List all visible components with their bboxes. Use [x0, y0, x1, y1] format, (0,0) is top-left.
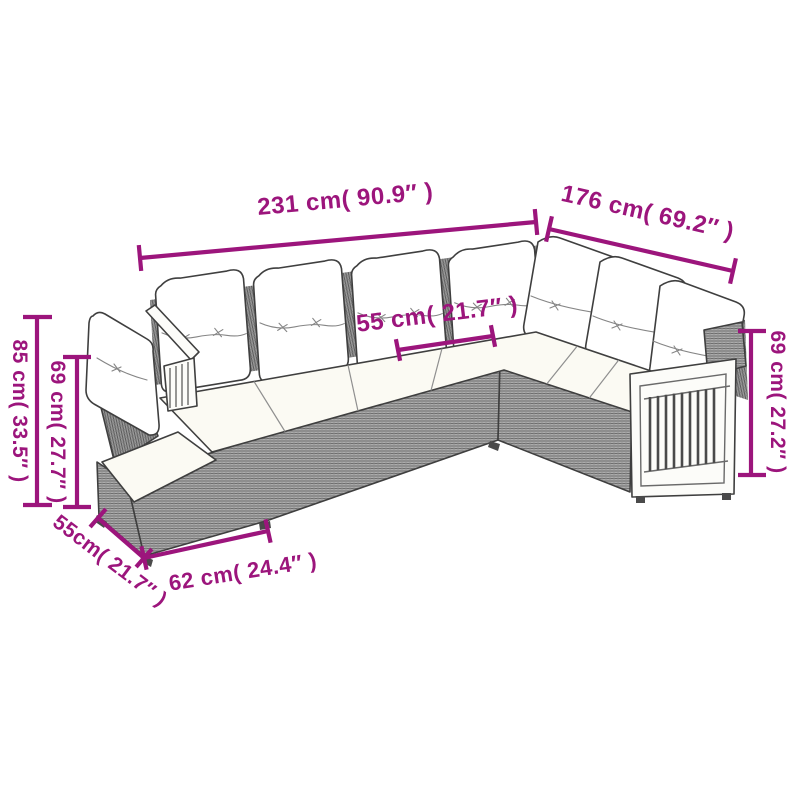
back-cushion: [86, 312, 159, 435]
dimension-total-height-left: 85 cm( 33.5″ ): [8, 317, 52, 505]
dimension-label-back-height-right: 69 cm( 27.2″ ): [766, 330, 789, 473]
wood-slat-panel-right: [630, 359, 736, 497]
product-dimension-image: 231 cm( 90.9″ ) 176 cm( 69.2″ ) 55 cm( 2…: [0, 0, 800, 800]
dimension-diagram: 231 cm( 90.9″ ) 176 cm( 69.2″ ) 55 cm( 2…: [0, 0, 800, 800]
dimension-back-height-left: 69 cm( 27.7″ ): [46, 357, 91, 507]
back-cushion: [250, 259, 351, 382]
dimension-label-back-height-left: 69 cm( 27.7″ ): [46, 360, 69, 503]
dimension-label-main-width: 231 cm( 90.9″ ): [256, 178, 434, 221]
dimension-label-module-width: 62 cm( 24.4″ ): [167, 548, 319, 596]
sofa-illustration: [86, 237, 748, 567]
dimension-label-total-height-left: 85 cm( 33.5″ ): [8, 339, 31, 482]
